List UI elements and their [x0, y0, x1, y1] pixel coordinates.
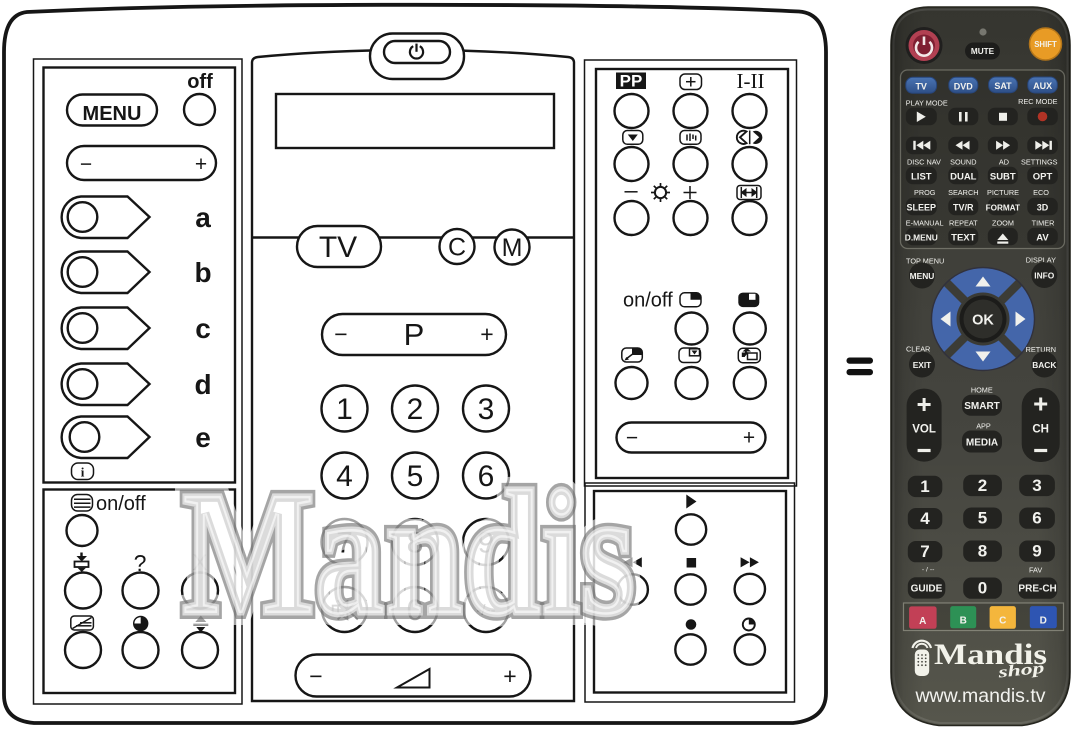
svg-text:VOL: VOL: [912, 424, 936, 436]
svg-text:SAT: SAT: [994, 81, 1012, 91]
svg-text:0: 0: [978, 579, 987, 598]
svg-text:6: 6: [1032, 509, 1041, 528]
svg-text:OK: OK: [972, 313, 994, 329]
svg-text:SETTINGS: SETTINGS: [1021, 158, 1058, 167]
svg-text:4: 4: [920, 509, 930, 528]
svg-text:+: +: [480, 321, 493, 347]
svg-text:SEARCH: SEARCH: [948, 188, 978, 197]
svg-text:5: 5: [978, 509, 987, 528]
svg-text:M: M: [502, 234, 523, 262]
svg-text:PP: PP: [620, 72, 643, 91]
svg-text:FAV: FAV: [1029, 566, 1042, 575]
svg-text:1: 1: [336, 393, 353, 426]
svg-text:CH: CH: [1032, 424, 1049, 436]
svg-text:8: 8: [978, 542, 987, 561]
svg-text:SMART: SMART: [964, 401, 1000, 412]
svg-text:MENU: MENU: [910, 271, 935, 281]
svg-text:9: 9: [1032, 542, 1041, 561]
svg-text:DVD: DVD: [954, 81, 974, 91]
svg-text:DISC NAV: DISC NAV: [907, 158, 941, 167]
svg-text:BACK: BACK: [1032, 360, 1056, 370]
svg-text:off: off: [187, 71, 213, 93]
svg-text:B: B: [960, 616, 967, 627]
svg-text:FORMAT: FORMAT: [986, 204, 1020, 213]
svg-text:E-MANUAL: E-MANUAL: [906, 218, 944, 227]
svg-text:+: +: [195, 153, 207, 176]
svg-text:TIMER: TIMER: [1032, 218, 1055, 227]
svg-text:P: P: [404, 317, 425, 352]
svg-text:−: −: [80, 153, 92, 176]
svg-text:SLEEP: SLEEP: [907, 203, 937, 213]
svg-text:ECO: ECO: [1033, 188, 1049, 197]
svg-text:HOME: HOME: [971, 386, 993, 395]
svg-text:MEDIA: MEDIA: [966, 437, 998, 448]
svg-text:ZOOM: ZOOM: [992, 218, 1014, 227]
svg-text:3D: 3D: [1037, 203, 1049, 213]
svg-text:+: +: [743, 427, 755, 450]
svg-text:- / --: - / --: [922, 567, 934, 574]
svg-text:i: i: [81, 465, 85, 480]
svg-text:SOUND: SOUND: [950, 158, 976, 167]
svg-text:PROG: PROG: [914, 188, 936, 197]
svg-text:www.mandis.tv: www.mandis.tv: [914, 685, 1045, 707]
svg-text:APP: APP: [976, 422, 991, 431]
svg-text:D.MENU: D.MENU: [905, 233, 938, 243]
svg-text:on/off: on/off: [623, 290, 673, 312]
svg-text:a: a: [195, 202, 211, 233]
svg-text:INFO: INFO: [1034, 270, 1054, 280]
svg-text:AUX: AUX: [1033, 81, 1052, 91]
svg-text:PLAY MODE: PLAY MODE: [906, 99, 948, 108]
svg-text:D: D: [1040, 616, 1047, 627]
svg-text:2: 2: [978, 476, 987, 495]
svg-text:GUIDE: GUIDE: [911, 584, 943, 595]
svg-text:LIST: LIST: [911, 172, 932, 183]
svg-text:3: 3: [1032, 476, 1041, 495]
svg-text:3: 3: [478, 393, 495, 426]
svg-text:+: +: [503, 663, 516, 689]
svg-text:TEXT: TEXT: [951, 233, 975, 244]
svg-text:PICTURE: PICTURE: [987, 188, 1019, 197]
svg-text:REPEAT: REPEAT: [949, 218, 978, 227]
svg-text:d: d: [194, 369, 211, 400]
svg-text:EXIT: EXIT: [913, 360, 932, 370]
svg-text:AV: AV: [1036, 233, 1049, 244]
svg-text:REC MODE: REC MODE: [1018, 97, 1057, 106]
svg-text:OPT: OPT: [1033, 172, 1053, 183]
svg-text:−: −: [334, 321, 347, 347]
svg-text:on/off: on/off: [96, 493, 146, 515]
svg-text:−: −: [309, 663, 322, 689]
svg-text:TV: TV: [915, 81, 927, 91]
svg-text:SUBT: SUBT: [990, 172, 1016, 183]
svg-text:1: 1: [920, 477, 929, 496]
svg-text:2: 2: [407, 393, 424, 426]
svg-text:−: −: [626, 427, 638, 450]
svg-text:DUAL: DUAL: [950, 172, 977, 183]
svg-text:e: e: [195, 422, 211, 453]
svg-text:TV: TV: [319, 231, 357, 264]
svg-text:C: C: [999, 616, 1006, 627]
svg-text:Mandis: Mandis: [182, 454, 635, 652]
svg-text:TV/R: TV/R: [953, 203, 974, 213]
svg-text:SHIFT: SHIFT: [1034, 40, 1057, 49]
svg-text:c: c: [195, 313, 211, 344]
svg-text:AD: AD: [999, 158, 1009, 167]
svg-text:MUTE: MUTE: [971, 47, 995, 56]
svg-text:b: b: [194, 257, 211, 288]
svg-text:I-II: I-II: [737, 69, 765, 93]
svg-text:PRE-CH: PRE-CH: [1018, 584, 1056, 595]
svg-text:7: 7: [920, 542, 929, 561]
svg-text:MENU: MENU: [83, 103, 142, 125]
svg-text:C: C: [448, 234, 466, 262]
svg-text:A: A: [919, 616, 926, 627]
